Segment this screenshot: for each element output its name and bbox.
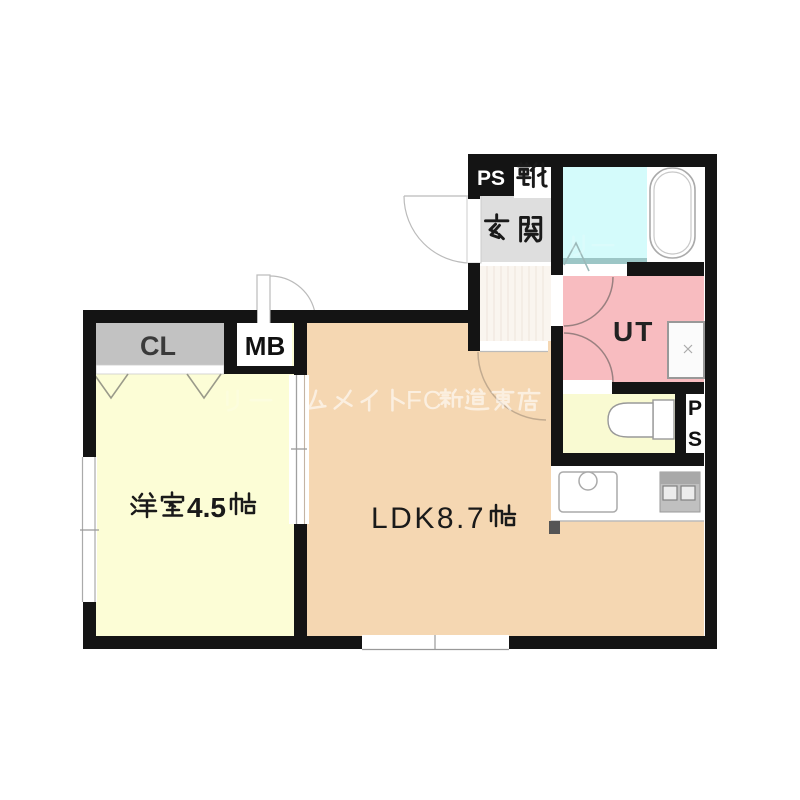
svg-text:S: S	[688, 428, 702, 451]
svg-text:CL: CL	[140, 331, 176, 361]
svg-text:FC: FC	[406, 385, 443, 415]
svg-text:UT: UT	[613, 316, 654, 347]
svg-text:LDK8.7: LDK8.7	[371, 502, 486, 535]
svg-text:P: P	[688, 397, 702, 420]
svg-text:MB: MB	[245, 331, 285, 361]
svg-text:4.5: 4.5	[187, 492, 226, 523]
svg-text:PS: PS	[477, 167, 505, 190]
